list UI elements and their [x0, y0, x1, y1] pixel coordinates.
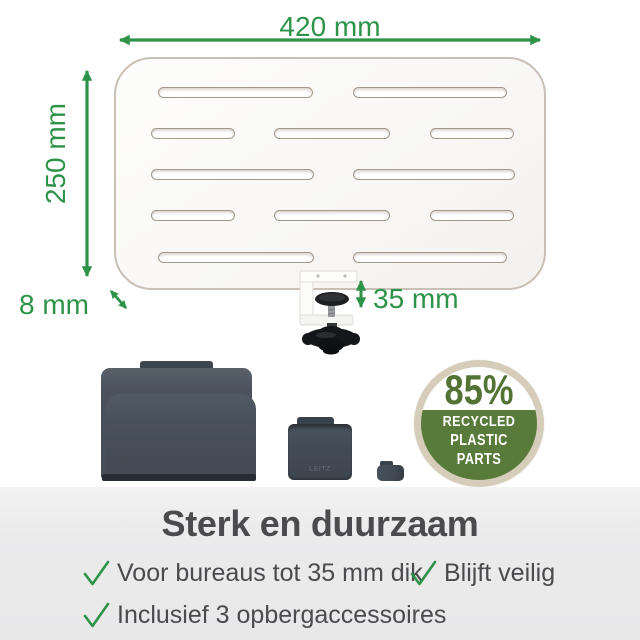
- recycled-line1: RECYCLED: [430, 413, 527, 431]
- footer-title: Sterk en duurzaam: [0, 503, 640, 545]
- height-dimension-label: 250 mm: [42, 103, 70, 204]
- letter-holder-base: [102, 474, 256, 481]
- recycled-badge-face: 85% RECYCLED PLASTIC PARTS: [421, 367, 537, 480]
- pen-cup-body: LEITZ: [288, 424, 352, 480]
- feature-bullet-text: Voor bureaus tot 35 mm dik: [117, 559, 423, 588]
- feature-bullet-1: Voor bureaus tot 35 mm dik: [82, 559, 423, 588]
- recycled-percent: 85%: [431, 368, 526, 412]
- recycled-badge: 85% RECYCLED PLASTIC PARTS: [414, 360, 544, 487]
- feature-bullet-text: Blijft veilig: [444, 559, 555, 588]
- product-infographic: 420 mm 250 mm 8 mm 35 mm LEITZ 85% RECYC…: [0, 0, 640, 640]
- feature-footer: Sterk en duurzaam Voor bureaus tot 35 mm…: [0, 487, 640, 640]
- feature-bullet-2: Blijft veilig: [409, 559, 555, 588]
- letter-holder-front: [106, 394, 256, 479]
- check-icon: [82, 559, 111, 588]
- width-dimension-label: 420 mm: [279, 13, 380, 41]
- feature-bullet-text: Inclusief 3 opbergaccessoires: [117, 601, 446, 630]
- recycled-line2: PLASTIC PARTS: [433, 431, 526, 469]
- hook-body: [377, 465, 404, 481]
- brand-label: LEITZ: [294, 465, 345, 472]
- check-icon: [409, 559, 438, 588]
- feature-bullet-3: Inclusief 3 opbergaccessoires: [82, 601, 446, 630]
- thickness-dimension-label: 8 mm: [19, 291, 89, 319]
- product-stage: 420 mm 250 mm 8 mm 35 mm LEITZ 85% RECYC…: [0, 0, 640, 487]
- clamp-capacity-label: 35 mm: [373, 285, 459, 313]
- thickness-arrow: [111, 291, 126, 308]
- dimension-arrows: [0, 0, 640, 487]
- check-icon: [82, 601, 111, 630]
